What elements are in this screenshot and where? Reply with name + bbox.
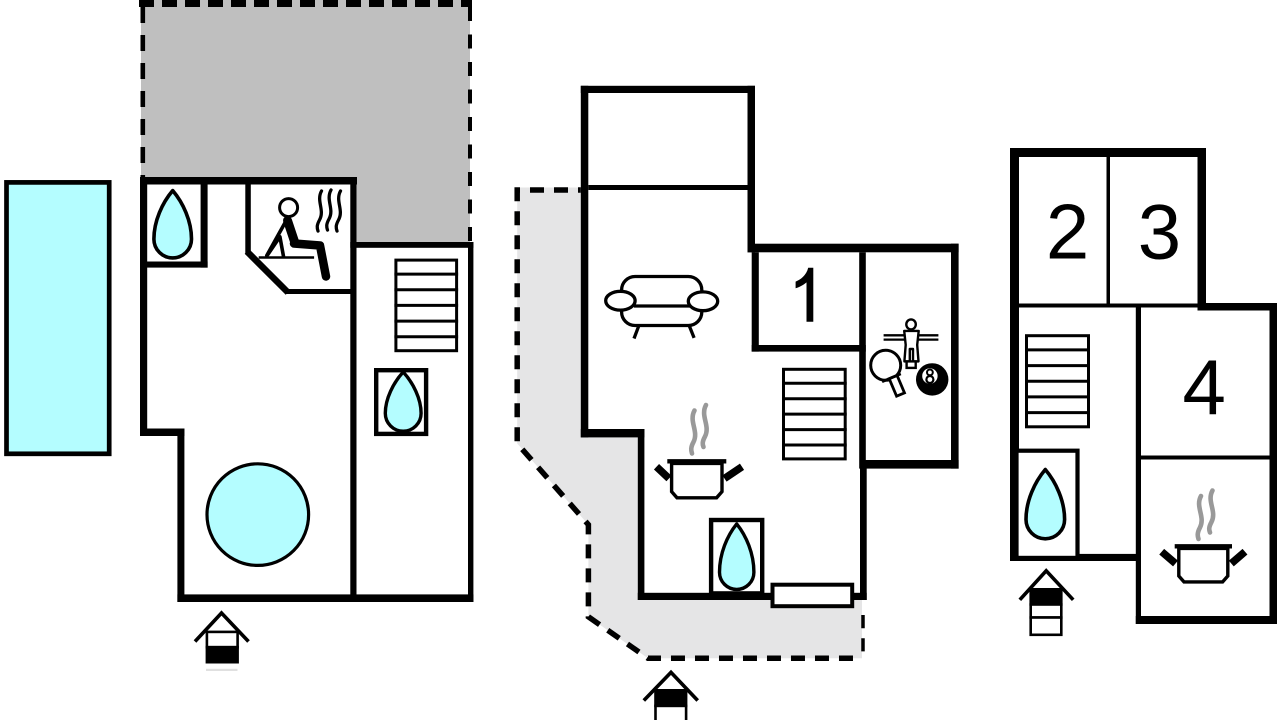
svg-text:2: 2 <box>1046 188 1089 276</box>
svg-text:3: 3 <box>1138 188 1181 276</box>
svg-text:4: 4 <box>1183 343 1226 431</box>
